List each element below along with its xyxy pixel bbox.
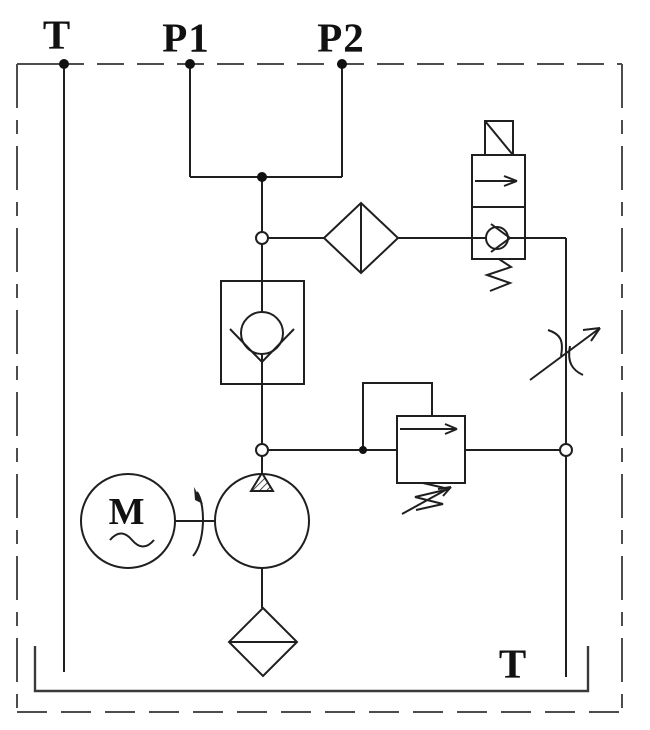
pressure-filter xyxy=(324,203,398,273)
relief-valve xyxy=(397,416,465,514)
hydraulic-schematic: T P1 P2 T M xyxy=(0,0,650,730)
solenoid-check-valve xyxy=(472,121,525,291)
suction-strainer xyxy=(229,608,297,676)
spring-icon xyxy=(487,259,511,291)
port-label-p2: P2 xyxy=(317,18,365,59)
schematic-canvas xyxy=(0,0,650,730)
tank-label-t: T xyxy=(499,644,527,685)
pump xyxy=(215,473,309,568)
motor-label-m: M xyxy=(109,493,146,531)
junction-dots xyxy=(59,59,367,454)
port-label-p1: P1 xyxy=(162,18,210,59)
enclosure-boundary xyxy=(17,64,622,712)
port-label-t: T xyxy=(43,15,71,56)
